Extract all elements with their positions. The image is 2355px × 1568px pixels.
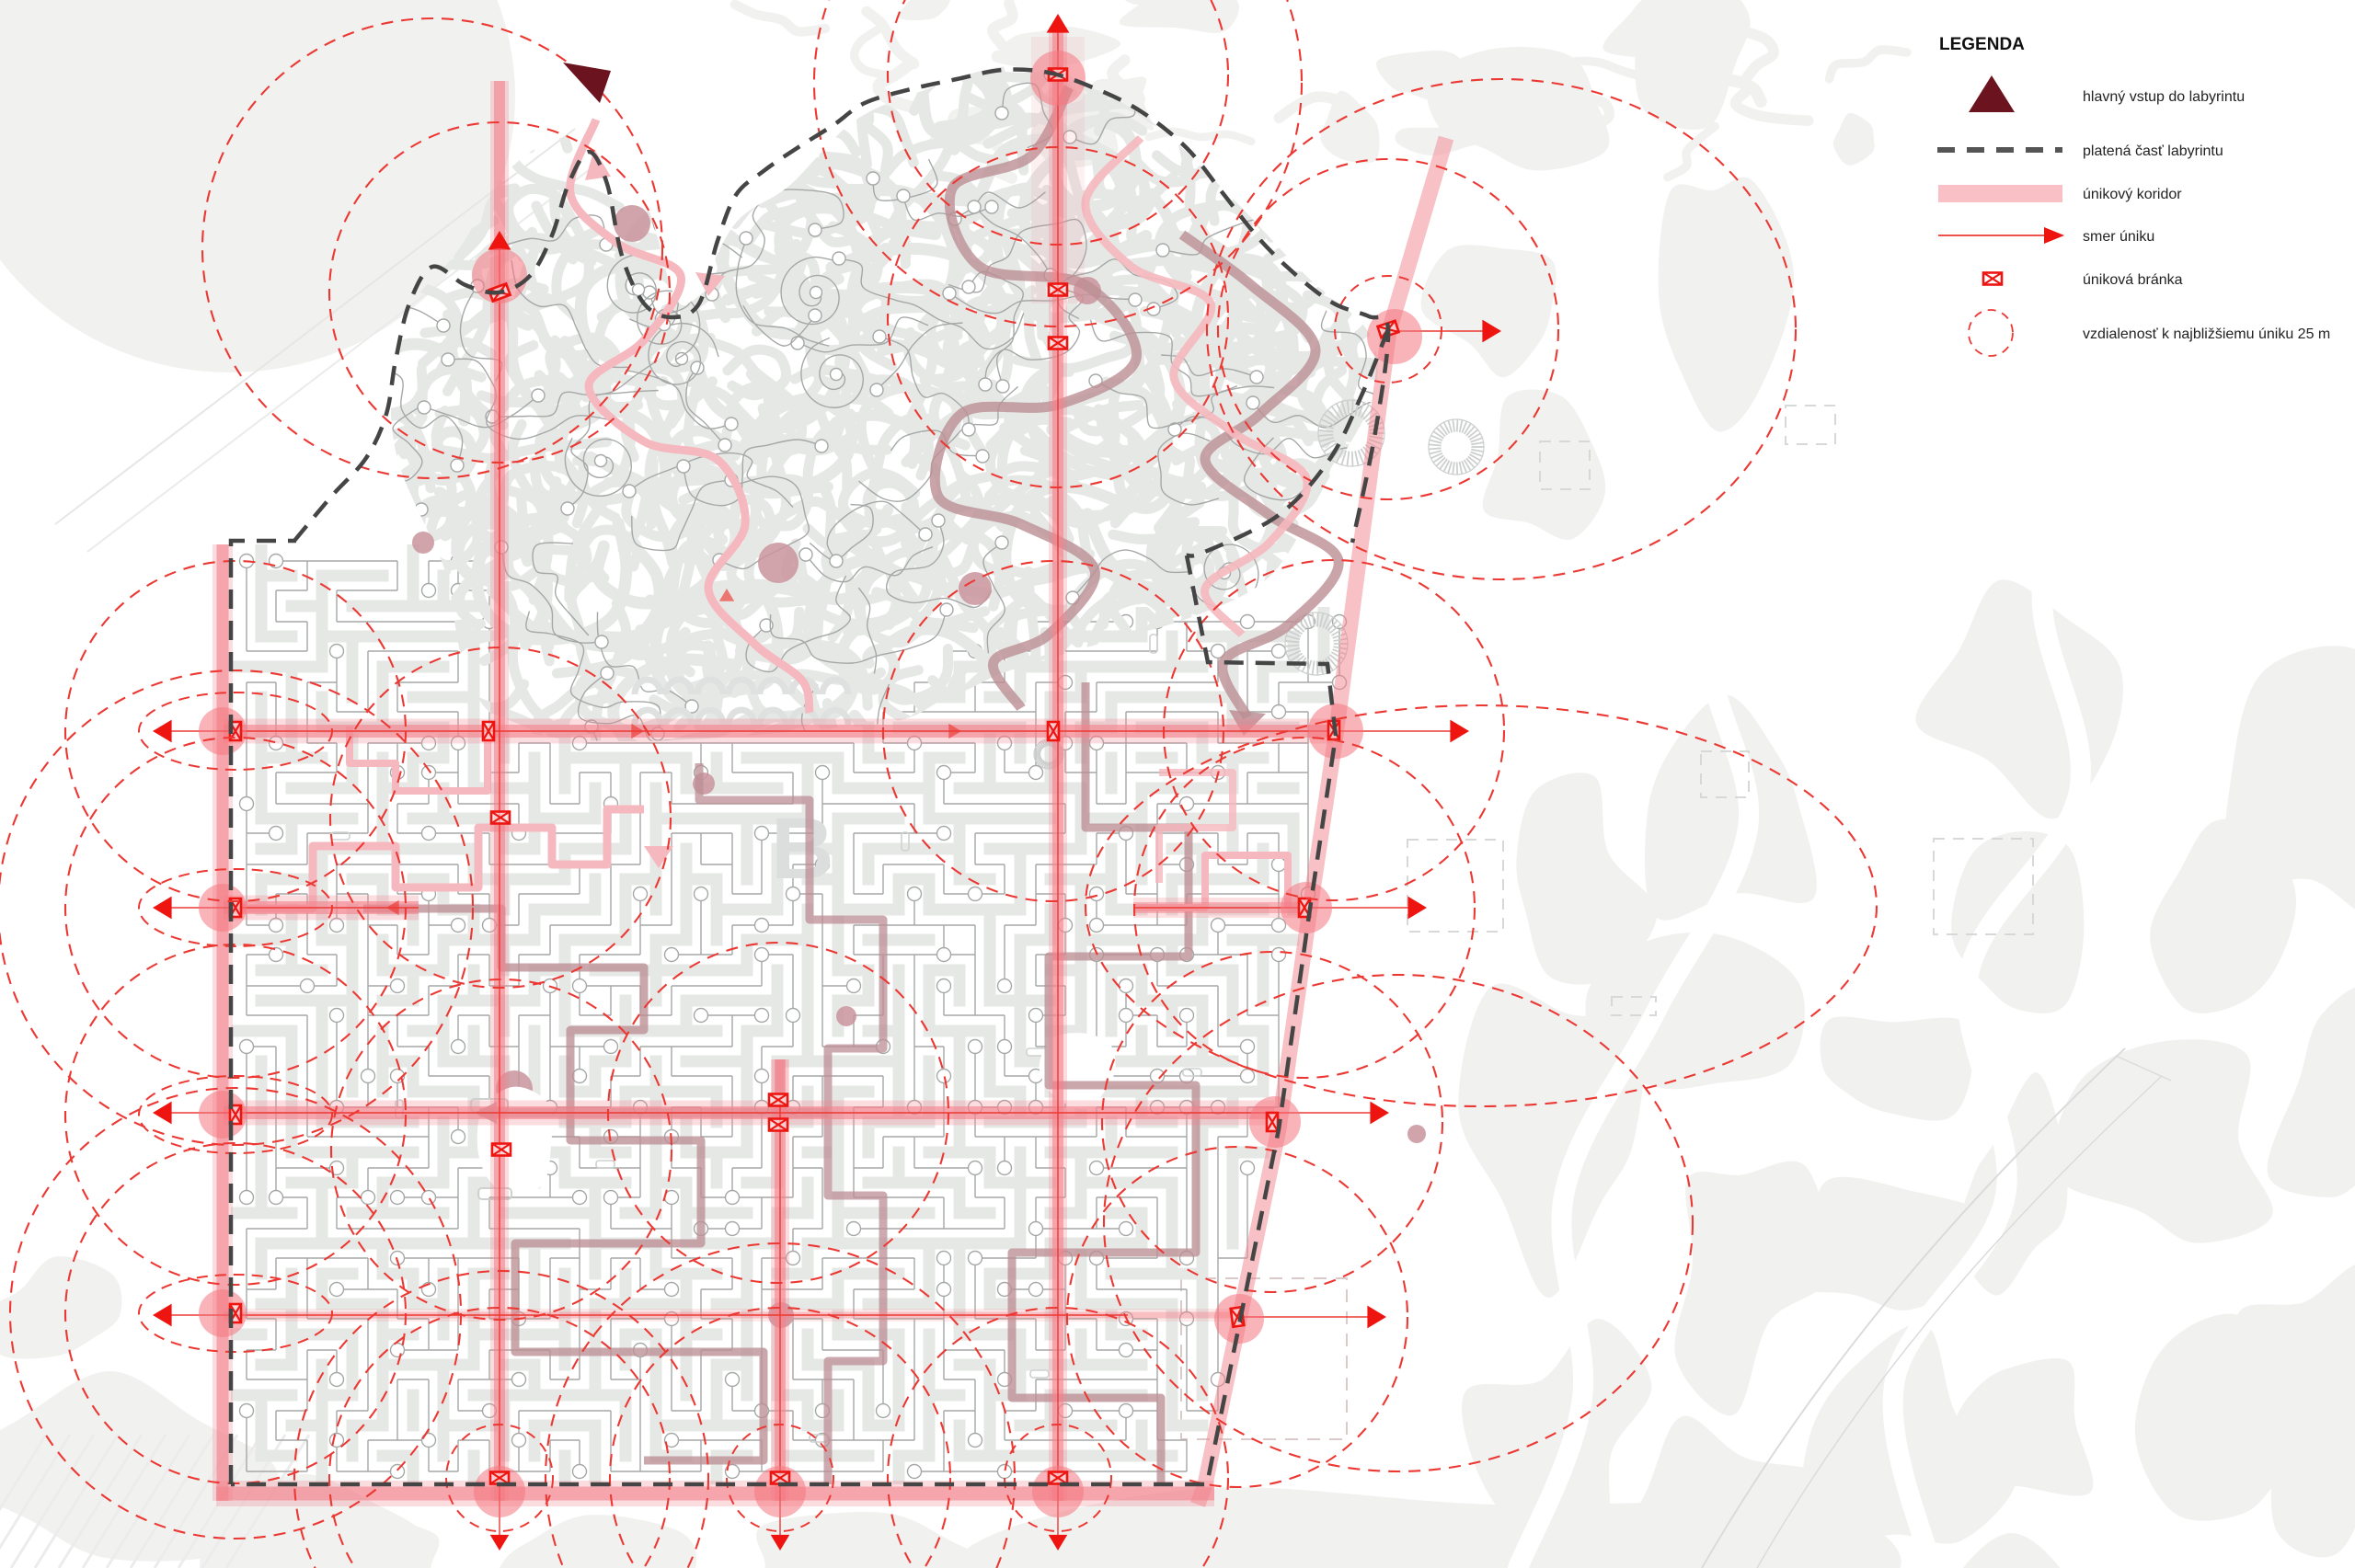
- svg-text:vzdialenosť k najbližšiemu úni: vzdialenosť k najbližšiemu úniku 25 m: [2083, 326, 2330, 342]
- svg-text:úniková bránka: úniková bránka: [2083, 272, 2183, 288]
- svg-text:platená časť labyrintu: platená časť labyrintu: [2083, 143, 2223, 159]
- svg-text:smer úniku: smer úniku: [2083, 229, 2154, 245]
- svg-text:B: B: [771, 800, 834, 898]
- svg-text:hlavný vstup do labyrintu: hlavný vstup do labyrintu: [2083, 89, 2245, 105]
- svg-text:LEGENDA: LEGENDA: [1939, 35, 2025, 54]
- svg-text:únikový koridor: únikový koridor: [2083, 187, 2182, 202]
